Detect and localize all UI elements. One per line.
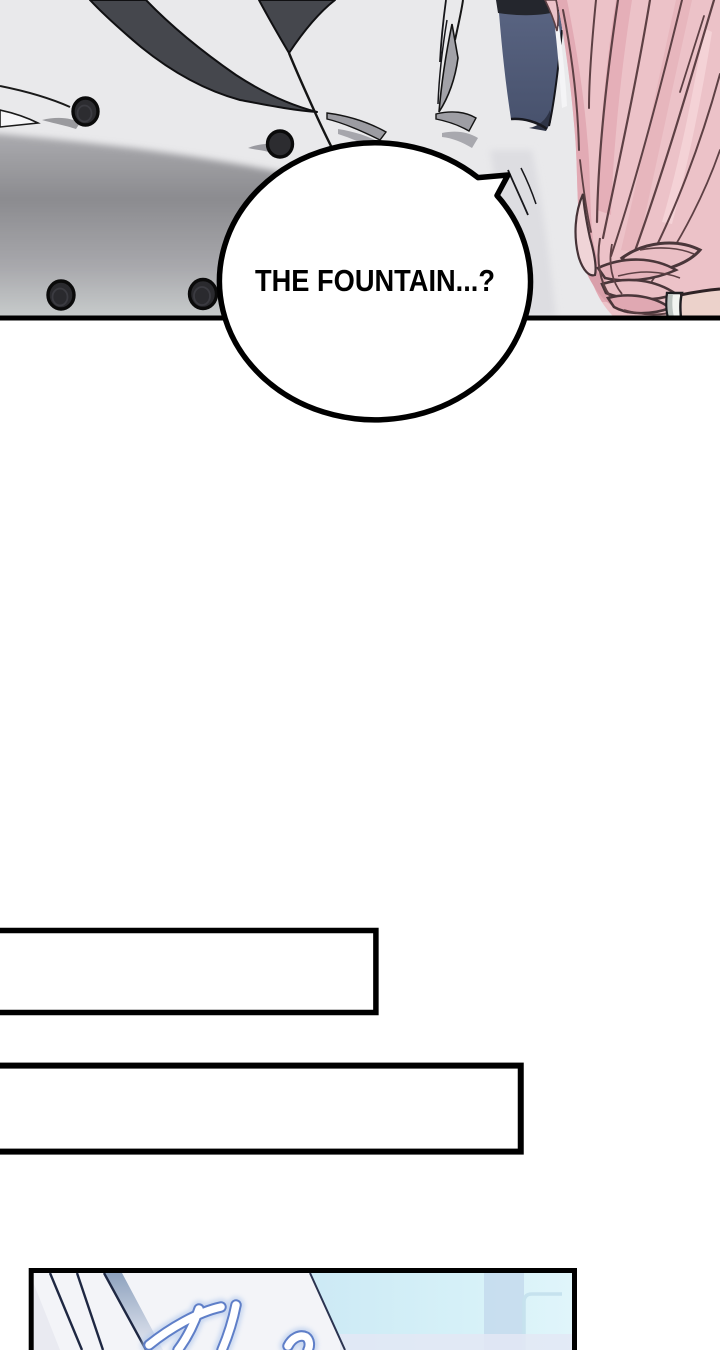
- svg-text:THE FOUNTAIN...?: THE FOUNTAIN...?: [255, 263, 495, 298]
